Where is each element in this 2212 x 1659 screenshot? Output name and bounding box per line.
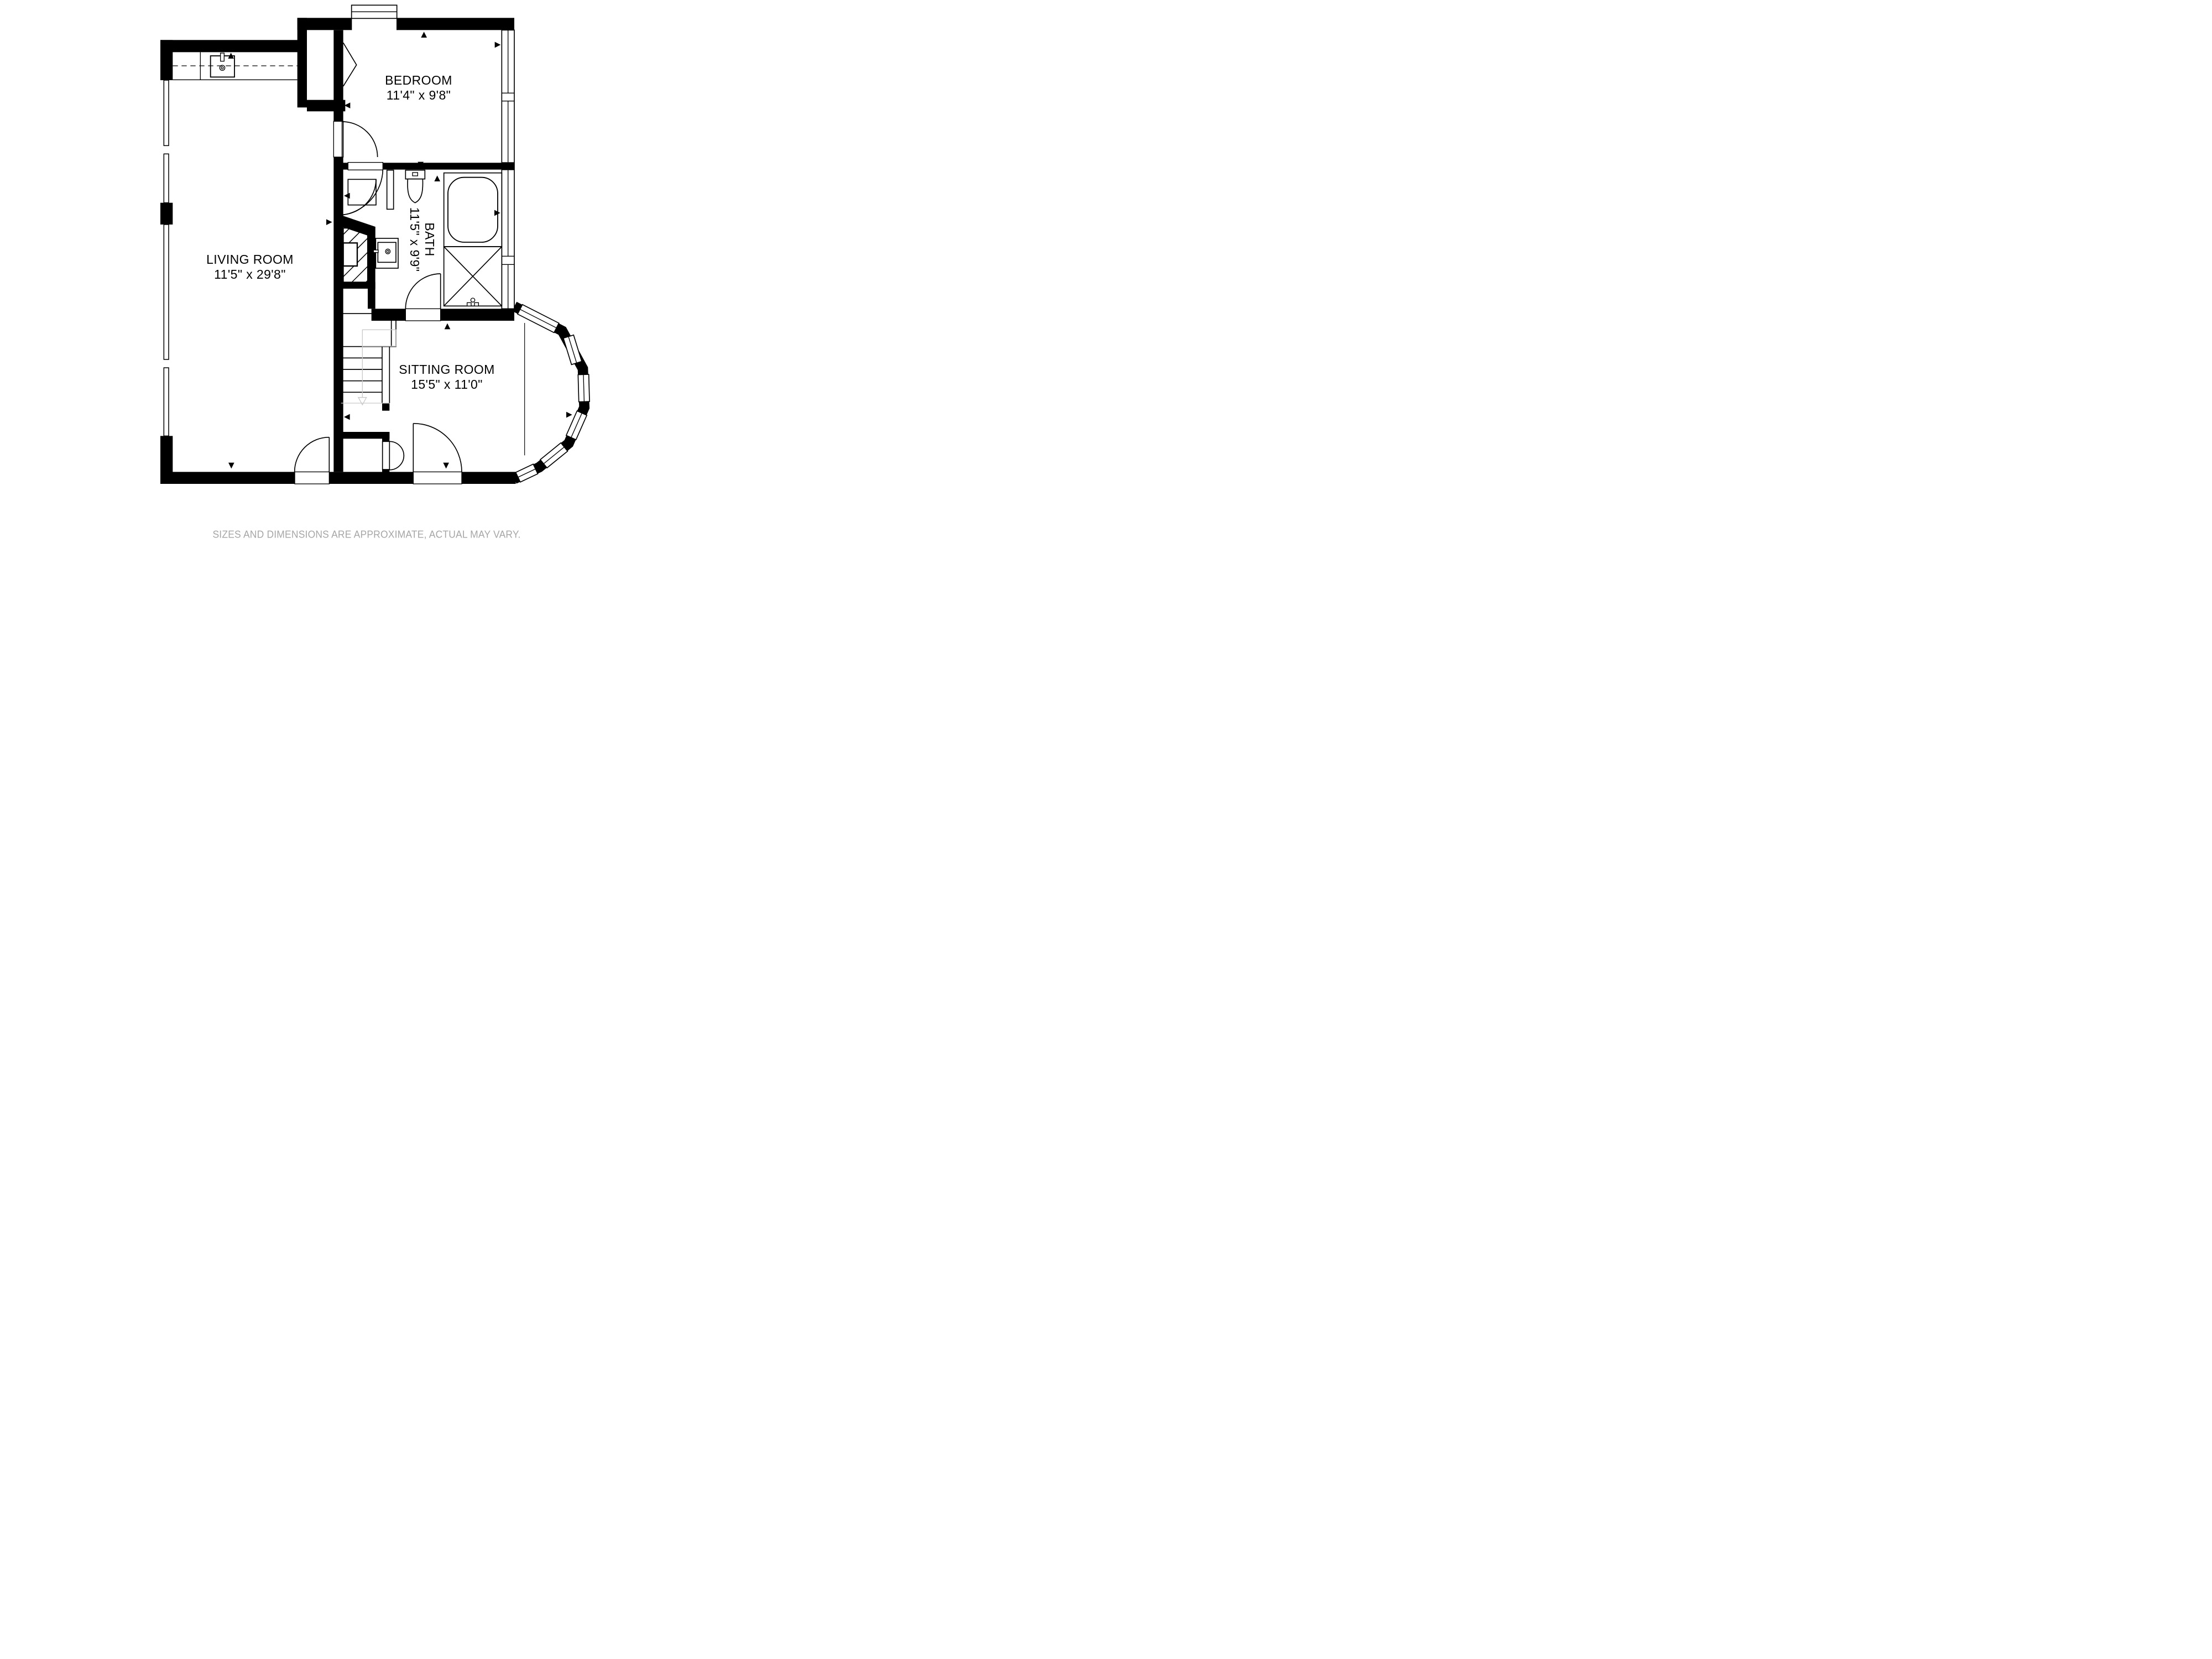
left-wall-windows [164, 80, 169, 436]
shower-icon [444, 247, 502, 306]
marker-left-icon [344, 193, 350, 199]
walls [160, 18, 516, 484]
living-room-door [295, 437, 330, 484]
room-label-bedroom: BEDROOM 11'4" x 9'8" [385, 73, 452, 103]
marker-right-icon [326, 219, 332, 225]
room-label-sitting-room: SITTING ROOM 15'5" x 11'0" [399, 362, 494, 392]
bath-hall-door [341, 163, 383, 215]
room-dimensions: 11'5" x 29'8" [206, 267, 294, 282]
bay-window [514, 305, 589, 482]
room-label-living-room: LIVING ROOM 11'5" x 29'8" [206, 252, 294, 282]
marker-left-icon [344, 414, 350, 420]
bay-window-segment [578, 374, 589, 402]
room-name: SITTING ROOM [399, 362, 494, 377]
vanity-sink-icon [373, 238, 398, 268]
bathtub-icon [444, 173, 502, 247]
bedroom-corner-chevron [343, 43, 357, 86]
bifold-closet-doors [383, 441, 404, 469]
bay-window-segment [518, 305, 559, 333]
bath-door [405, 274, 440, 321]
bedroom-top-window [352, 5, 397, 30]
staircase [341, 314, 396, 405]
marker-up-icon [434, 175, 440, 181]
marker-right-icon [495, 42, 501, 48]
bay-window-segment [564, 335, 582, 364]
bay-window-segment [516, 464, 538, 482]
room-name: LIVING ROOM [206, 252, 294, 267]
room-dimensions: 11'4" x 9'8" [385, 88, 452, 103]
toilet-partition [387, 170, 394, 210]
sitting-room-entry-door [413, 424, 462, 484]
room-dimensions: 15'5" x 11'0" [399, 377, 494, 392]
kitchen-counter [173, 52, 297, 80]
toilet-icon [405, 170, 425, 203]
floor-plan-drawing [0, 0, 738, 553]
disclaimer-text: SIZES AND DIMENSIONS ARE APPROXIMATE, AC… [212, 529, 520, 541]
bay-window-segment [540, 443, 567, 468]
marker-down-icon [443, 463, 449, 469]
marker-down-icon [228, 463, 234, 469]
room-dimensions: 11'5" x 9'9" [407, 207, 422, 272]
stair-down-arrow-icon [358, 330, 396, 405]
room-name: BATH [422, 207, 437, 272]
marker-up-icon [445, 324, 451, 330]
bedroom-door [333, 121, 377, 157]
floor-plan: BEDROOM 11'4" x 9'8" LIVING ROOM 11'5" x… [0, 0, 738, 553]
marker-up-icon [421, 32, 427, 38]
right-wall-windows [502, 30, 514, 309]
marker-right-icon [566, 412, 572, 418]
under-stair-void-hatch [343, 228, 368, 282]
room-label-bath: BATH 11'5" x 9'9" [407, 207, 437, 272]
room-name: BEDROOM [385, 73, 452, 88]
